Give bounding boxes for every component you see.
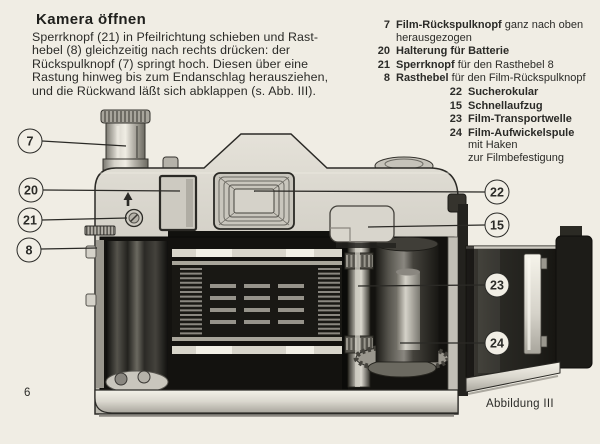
instruction-paragraph: Sperrknopf (21) in Pfeilrichtung schiebe… — [32, 31, 366, 98]
camera-back-door — [448, 194, 592, 396]
pressure-plate-bar — [524, 254, 541, 354]
lock-knob-drawing — [126, 210, 143, 227]
legend-number: 21 — [370, 59, 390, 72]
legend-number: 15 — [442, 100, 462, 113]
bottom-plate — [95, 390, 458, 413]
legend-label: Film-Transportwelle — [468, 113, 600, 126]
legend-item-23: 23 Film-Transportwelle — [442, 113, 600, 126]
callout-24: 24 — [485, 331, 510, 356]
viewfinder-eyepiece-drawing — [214, 173, 294, 229]
legend-item-21: 21 Sperrknopf für den Rasthebel 8 — [370, 59, 600, 72]
callout-23: 23 — [485, 273, 510, 298]
legend-item-7: 7 Film-Rückspulknopf ganz nach oben hera… — [370, 19, 600, 44]
battery-holder-drawing — [160, 176, 196, 230]
legend-label: Film-Rückspulknopf ganz nach oben heraus… — [396, 19, 600, 44]
legend-number: 23 — [442, 113, 462, 126]
legend-item-22: 22 Sucherokular — [442, 86, 600, 99]
legend-label: Sucherokular — [468, 86, 600, 99]
legend-number: 7 — [370, 19, 390, 44]
legend-number: 8 — [370, 72, 390, 85]
legend-item-15: 15 Schnellaufzug — [442, 100, 600, 113]
figure-caption: Abbildung III — [486, 398, 554, 410]
latch-lever-drawing — [85, 226, 115, 235]
page-number: 6 — [24, 387, 30, 399]
legend-number: 20 — [370, 45, 390, 58]
legend-label: Sperrknopf für den Rasthebel 8 — [396, 59, 600, 72]
legend-item-8: 8 Rasthebel für den Film-Rückspulknopf — [370, 72, 600, 85]
legend-label: Halterung für Batterie — [396, 45, 600, 58]
callout-8: 8 — [17, 238, 42, 263]
rewind-knob-drawing — [101, 110, 150, 170]
film-chamber — [86, 231, 458, 393]
callout-21: 21 — [18, 208, 43, 233]
callout-7: 7 — [18, 129, 43, 154]
callout-15: 15 — [485, 213, 510, 238]
legend-label: Rasthebel für den Film-Rückspulknopf — [396, 72, 600, 85]
callout-20: 20 — [19, 178, 44, 203]
legend-item-20: 20 Halterung für Batterie — [370, 45, 600, 58]
legend-number: 22 — [442, 86, 462, 99]
legend-number: 24 — [442, 127, 462, 165]
callout-22: 22 — [485, 180, 510, 205]
parts-legend: 7 Film-Rückspulknopf ganz nach oben hera… — [370, 19, 600, 166]
legend-label: Film-Aufwickelspule mit Haken zur Filmbe… — [468, 127, 600, 165]
legend-item-24: 24 Film-Aufwickelspule mit Haken zur Fil… — [442, 127, 600, 165]
page-title: Kamera öffnen — [36, 11, 146, 28]
legend-label: Schnellaufzug — [468, 100, 600, 113]
